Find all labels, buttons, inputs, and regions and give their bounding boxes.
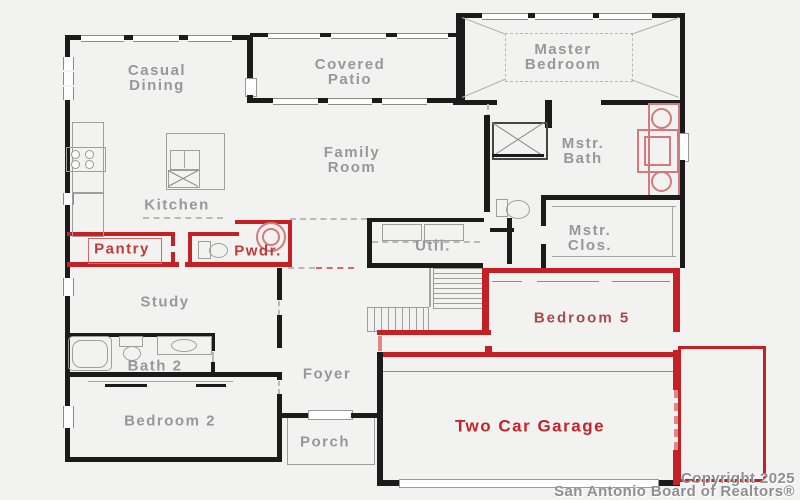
option-wall — [485, 346, 492, 353]
window — [63, 87, 74, 100]
option-window-line — [612, 281, 670, 282]
wall-segment — [377, 352, 383, 485]
wall-segment — [541, 195, 685, 200]
window — [482, 13, 528, 20]
wall-segment — [541, 244, 546, 268]
tray-corner-line — [631, 79, 679, 98]
stairs-lower-flight — [367, 307, 429, 332]
option-wall — [185, 262, 292, 267]
garage-interior-line — [383, 371, 673, 372]
window — [63, 72, 74, 85]
stair-divider — [429, 268, 431, 307]
burner — [71, 150, 80, 159]
dashed-line — [143, 217, 223, 219]
label-casual-dining: CasualDining — [128, 63, 186, 93]
label-mstr-bath: Mstr.Bath — [562, 136, 605, 166]
label-bath2: Bath 2 — [128, 359, 183, 374]
label-covered-patio: CoveredPatio — [315, 57, 386, 87]
window — [133, 35, 179, 42]
window — [188, 35, 232, 42]
sink — [651, 171, 672, 192]
window — [63, 57, 74, 70]
burner — [85, 160, 94, 169]
closet-shelf-line — [552, 206, 676, 207]
dashed-line-red — [316, 267, 354, 269]
stairs-upper-flight — [433, 268, 484, 309]
wall-segment — [65, 35, 70, 57]
label-pwdr: Pwdr. — [234, 244, 282, 259]
window — [397, 33, 448, 39]
window — [599, 13, 652, 20]
sink — [651, 108, 672, 129]
island-sink-divider — [184, 150, 185, 168]
wall-segment — [124, 35, 133, 40]
label-porch: Porch — [300, 435, 350, 450]
burner — [71, 160, 80, 169]
option-wall — [288, 220, 292, 266]
wall-segment — [528, 13, 535, 18]
wall-segment — [320, 33, 331, 37]
wall-segment — [65, 457, 282, 462]
option-wall — [377, 330, 491, 335]
dashed-line — [288, 267, 315, 269]
label-bedroom2: Bedroom 2 — [124, 414, 216, 429]
option-wall — [673, 273, 680, 332]
vanity-cabinet-inner — [644, 136, 671, 166]
wall-segment — [541, 200, 546, 226]
wall-segment — [65, 205, 70, 278]
floor-plan: CasualDining CoveredPatio MasterBedroom … — [0, 0, 800, 500]
option-wall — [171, 236, 175, 246]
window — [63, 278, 74, 296]
option-wall — [188, 232, 239, 236]
label-bedroom5: Bedroom 5 — [534, 311, 630, 326]
wall-segment — [250, 98, 273, 103]
option-door — [378, 336, 382, 351]
wall-segment — [484, 115, 490, 212]
label-foyer: Foyer — [303, 367, 351, 382]
option-wall — [171, 252, 175, 262]
sliding-door — [328, 98, 372, 105]
dashed-line — [290, 218, 367, 220]
option-window-line — [537, 281, 599, 282]
label-master-bedroom: MasterBedroom — [525, 42, 601, 72]
wall-segment — [372, 98, 382, 103]
wall-segment — [507, 218, 512, 264]
wall-segment — [492, 154, 544, 157]
label-garage: Two Car Garage — [455, 419, 605, 434]
door-swing — [278, 301, 280, 315]
window — [331, 33, 386, 39]
wall-segment — [453, 100, 497, 105]
wall-segment — [367, 218, 484, 222]
copyright-line2: San Antonio Board of Realtors® — [554, 485, 795, 498]
wall-segment — [456, 13, 482, 18]
option-extension-outline — [678, 346, 766, 482]
wall-segment — [179, 35, 188, 40]
label-pantry: Pantry — [94, 242, 150, 257]
wall-segment — [247, 37, 253, 78]
door-swing — [212, 352, 214, 362]
option-window-line — [492, 281, 522, 282]
label-kitchen: Kitchen — [144, 198, 210, 213]
wall-segment — [277, 372, 282, 380]
option-wall — [482, 268, 680, 273]
label-util: Util. — [415, 239, 451, 254]
window — [268, 33, 320, 39]
wall-segment — [680, 13, 685, 133]
wall-segment — [250, 33, 268, 37]
wall-segment — [386, 33, 397, 37]
label-mstr-clos: Mstr.Clos. — [568, 223, 612, 253]
closet-shelf-line — [672, 206, 673, 257]
window — [63, 406, 74, 428]
option-wall — [482, 273, 489, 335]
closet-shelf-line — [552, 256, 676, 257]
label-family-room: FamilyRoom — [324, 145, 381, 175]
sliding-door — [273, 98, 318, 105]
wall-segment — [318, 98, 328, 103]
option-wall — [382, 352, 675, 357]
label-study: Study — [140, 295, 189, 310]
wall-segment — [680, 160, 685, 268]
closet-door — [196, 384, 226, 387]
wall-segment — [277, 394, 282, 462]
sliding-door — [382, 98, 427, 105]
burner — [85, 150, 94, 159]
copyright-notice: Copyright 2025 San Antonio Board of Real… — [554, 472, 795, 498]
bathtub-inner — [72, 340, 108, 368]
wall-segment — [277, 268, 282, 300]
tray-corner-line — [462, 79, 506, 98]
toilet — [209, 243, 228, 258]
sink — [171, 339, 197, 352]
window — [535, 13, 593, 20]
wall-segment — [367, 222, 372, 267]
window — [81, 35, 124, 42]
closet-shelf-line — [88, 381, 233, 382]
kitchen-counter — [72, 192, 104, 237]
wall-segment — [277, 315, 282, 348]
wall-segment — [456, 13, 465, 101]
island-sink — [170, 150, 200, 170]
toilet — [506, 200, 530, 219]
door-swing — [278, 381, 280, 394]
closet-door — [105, 384, 147, 387]
